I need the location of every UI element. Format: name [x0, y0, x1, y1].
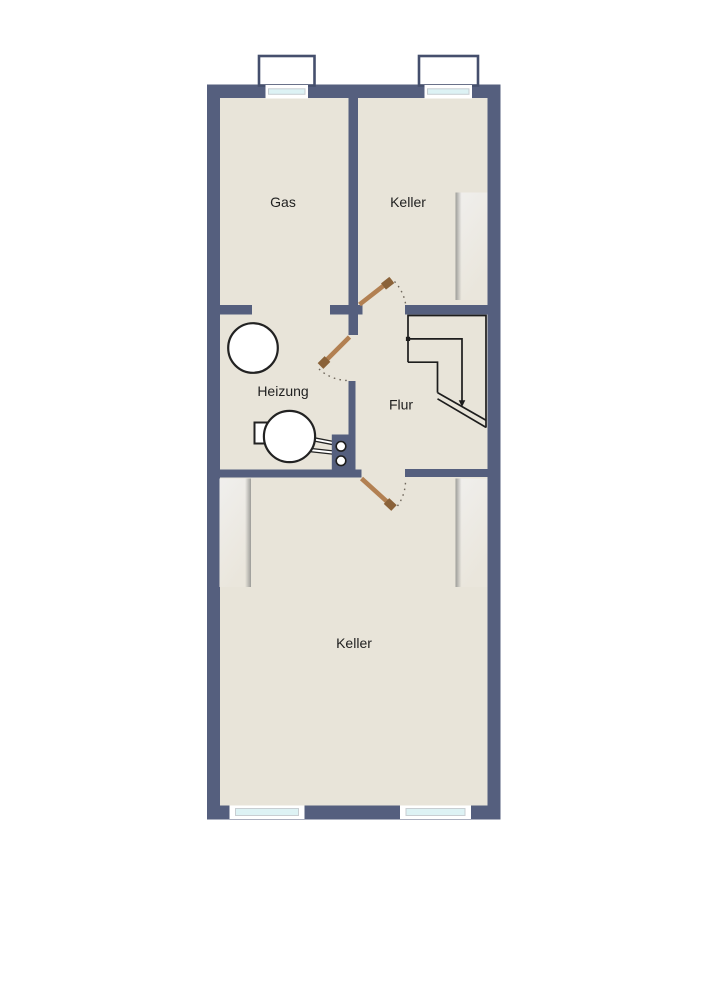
svg-text:Heizung: Heizung — [257, 383, 308, 399]
svg-text:Keller: Keller — [336, 635, 372, 651]
svg-text:Gas: Gas — [270, 194, 296, 210]
svg-text:Flur: Flur — [389, 397, 413, 413]
svg-text:Keller: Keller — [390, 194, 426, 210]
